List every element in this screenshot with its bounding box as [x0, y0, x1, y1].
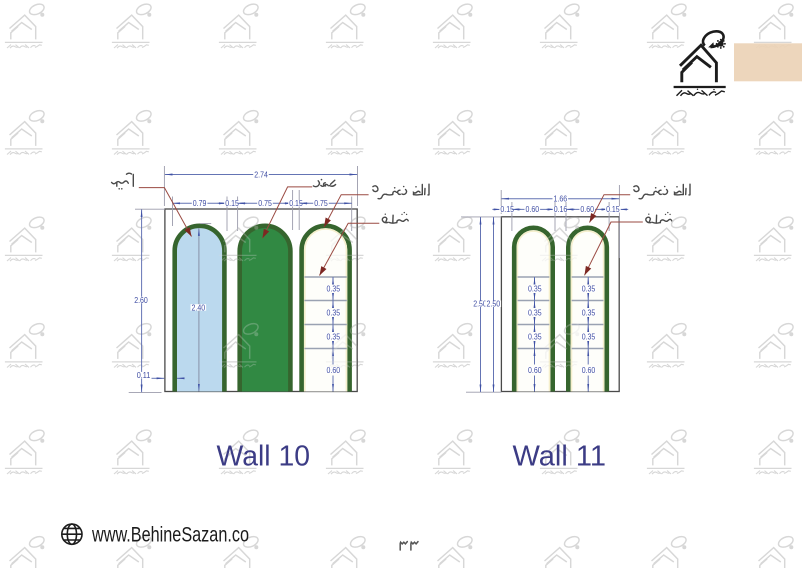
- svg-text:0.35: 0.35: [327, 307, 341, 317]
- svg-text:Wall 11: Wall 11: [513, 441, 607, 473]
- svg-text:0.60: 0.60: [528, 365, 542, 375]
- svg-text:0.60: 0.60: [526, 204, 540, 214]
- svg-text:0.16: 0.16: [554, 204, 568, 214]
- svg-text:0.35: 0.35: [528, 307, 542, 317]
- svg-text:Wall 10: Wall 10: [217, 441, 311, 473]
- svg-text:0.35: 0.35: [582, 307, 596, 317]
- svg-text:1.66: 1.66: [554, 194, 568, 204]
- svg-text:0.35: 0.35: [528, 331, 542, 341]
- svg-text:2.40: 2.40: [192, 302, 206, 312]
- svg-text:0.35: 0.35: [582, 331, 596, 341]
- svg-text:0.60: 0.60: [580, 204, 594, 214]
- svg-text:0.15: 0.15: [225, 198, 239, 208]
- svg-text:0.35: 0.35: [582, 284, 596, 294]
- svg-text:0.15: 0.15: [606, 204, 620, 214]
- svg-text:2.60: 2.60: [134, 295, 148, 305]
- svg-text:0.35: 0.35: [327, 331, 341, 341]
- svg-text:0.11: 0.11: [137, 370, 151, 380]
- svg-text:2.50: 2.50: [473, 299, 487, 309]
- svg-text:0.35: 0.35: [327, 284, 341, 294]
- svg-text:0.35: 0.35: [528, 284, 542, 294]
- svg-text:0.75: 0.75: [314, 198, 328, 208]
- svg-text:0.79: 0.79: [193, 198, 207, 208]
- svg-text:0.60: 0.60: [582, 365, 596, 375]
- svg-text:0.75: 0.75: [258, 198, 272, 208]
- svg-text:2.50: 2.50: [487, 299, 501, 309]
- svg-text:www.BehineSazan.co: www.BehineSazan.co: [91, 524, 249, 547]
- svg-text:2.74: 2.74: [254, 169, 268, 179]
